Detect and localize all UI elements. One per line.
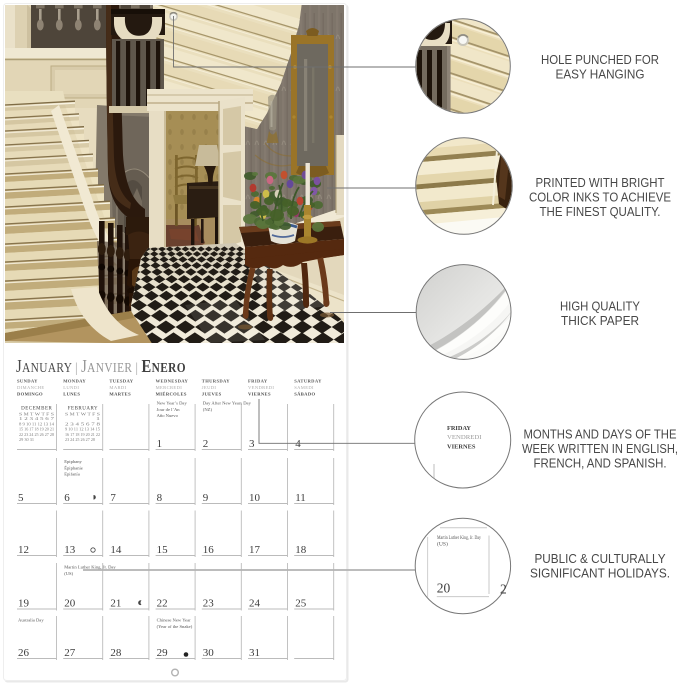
svg-text:SATURDAY: SATURDAY [294,379,322,384]
svg-text:PUBLIC & CULTURALLY: PUBLIC & CULTURALLY [535,552,667,566]
svg-text:8: 8 [157,492,163,504]
svg-text:(Year of the Snake): (Year of the Snake) [157,624,193,629]
svg-text:25: 25 [295,598,307,610]
svg-text:EASY HANGING: EASY HANGING [556,68,645,82]
svg-text:18: 18 [295,544,307,556]
svg-text:THICK PAPER: THICK PAPER [561,314,639,328]
svg-text:20: 20 [64,598,76,610]
svg-text:SAMEDI: SAMEDI [294,385,314,390]
svg-text:22 23 24 25 26 27 28: 22 23 24 25 26 27 28 [19,432,54,437]
svg-text:SÁBADO: SÁBADO [294,392,315,397]
svg-text:6: 6 [64,492,70,504]
svg-text:VENDREDI: VENDREDI [447,434,482,441]
svg-text:24: 24 [249,598,261,610]
svg-text:VIERNES: VIERNES [447,443,476,450]
svg-text:Epifanía: Epifanía [64,472,80,477]
svg-text:3: 3 [249,438,255,450]
svg-text:21: 21 [110,598,121,610]
svg-text:Año Nuevo: Año Nuevo [157,413,179,418]
svg-text:PRINTED WITH BRIGHT: PRINTED WITH BRIGHT [536,176,665,190]
svg-text:10: 10 [249,492,261,504]
svg-text:SUNDAY: SUNDAY [17,379,38,384]
svg-text:9 10 11 12 13 14 15: 9 10 11 12 13 14 15 [65,427,100,432]
svg-text:2: 2 [203,438,209,450]
svg-text:2: 2 [500,582,507,597]
svg-text:VIERNES: VIERNES [248,392,271,397]
svg-text:FRIDAY: FRIDAY [447,425,471,432]
svg-text:15 16 17 18 19 20 21: 15 16 17 18 19 20 21 [19,427,54,432]
svg-text:MARTES: MARTES [109,392,131,397]
svg-text:(US): (US) [437,541,448,548]
svg-text:4: 4 [295,438,301,450]
svg-text:Australia Day: Australia Day [18,618,44,623]
svg-text:Jour de l’An: Jour de l’An [157,407,181,412]
svg-text:MERCREDI: MERCREDI [156,385,183,390]
svg-text:9: 9 [203,492,209,504]
svg-text:26: 26 [18,647,30,659]
svg-text:THURSDAY: THURSDAY [202,379,230,384]
svg-text:VENDREDI: VENDREDI [248,385,274,390]
svg-text:(US): (US) [64,571,73,576]
svg-text:17: 17 [249,544,261,556]
svg-text:20: 20 [437,581,451,596]
svg-text:23 24 25 26 27 28: 23 24 25 26 27 28 [65,437,95,442]
svg-text:28: 28 [110,647,122,659]
svg-text:Martin Luther King, Jr. Day: Martin Luther King, Jr. Day [437,535,481,541]
svg-text:DOMINGO: DOMINGO [17,392,43,397]
svg-text:1 2 3 4 5 6 7: 1 2 3 4 5 6 7 [19,416,54,421]
svg-text:12: 12 [18,544,29,556]
svg-text:Épiphanie: Épiphanie [64,465,83,470]
svg-text:DIMANCHE: DIMANCHE [17,385,45,390]
svg-text:MONDAY: MONDAY [63,379,86,384]
svg-text:23: 23 [203,598,215,610]
svg-text:SIGNIFICANT HOLIDAYS.: SIGNIFICANT HOLIDAYS. [530,567,670,581]
svg-text:WEEK WRITTEN IN ENGLISH,: WEEK WRITTEN IN ENGLISH, [522,442,678,456]
svg-text:JUEVES: JUEVES [202,392,222,397]
svg-text:13: 13 [64,544,76,556]
svg-text:19: 19 [18,598,30,610]
svg-text:29 30 31: 29 30 31 [19,437,34,442]
svg-text:JEUDI: JEUDI [202,385,217,390]
svg-text:1: 1 [157,438,163,450]
svg-text:16 17 18 19 20 21 22: 16 17 18 19 20 21 22 [65,432,100,437]
svg-text:LUNDI: LUNDI [63,385,79,390]
svg-text:22: 22 [157,598,168,610]
svg-text:Epiphany: Epiphany [64,459,82,464]
svg-text:HOLE PUNCHED FOR: HOLE PUNCHED FOR [541,53,659,67]
svg-text:29: 29 [157,647,169,659]
svg-text:30: 30 [203,647,215,659]
svg-text:31: 31 [249,647,260,659]
svg-text:Chinese New Year: Chinese New Year [157,618,192,623]
svg-text:FRIDAY: FRIDAY [248,379,268,384]
svg-text:5: 5 [18,492,24,504]
svg-text:7: 7 [110,492,116,504]
svg-text:LUNES: LUNES [63,392,80,397]
svg-text:HIGH QUALITY: HIGH QUALITY [560,300,641,314]
svg-text:11: 11 [295,492,306,504]
svg-text:COLOR INKS TO ACHIEVE: COLOR INKS TO ACHIEVE [529,191,671,205]
svg-text:16: 16 [203,544,215,556]
svg-text:1: 1 [96,416,100,421]
svg-text:15: 15 [157,544,169,556]
svg-text:MONTHS AND DAYS OF THE: MONTHS AND DAYS OF THE [524,428,677,442]
svg-text:TUESDAY: TUESDAY [109,379,133,384]
svg-text:8 9 10 11 12 13 14: 8 9 10 11 12 13 14 [19,421,54,426]
svg-text:MARDI: MARDI [109,385,126,390]
svg-text:2 3 4 5 6 7 8: 2 3 4 5 6 7 8 [65,421,100,426]
svg-text:WEDNESDAY: WEDNESDAY [156,379,189,384]
svg-text:FRENCH, AND SPANISH.: FRENCH, AND SPANISH. [534,457,667,471]
svg-text:27: 27 [64,647,76,659]
svg-text:(NZ): (NZ) [203,407,213,412]
svg-text:New Year’s Day: New Year’s Day [157,401,188,406]
svg-text:THE FINEST QUALITY.: THE FINEST QUALITY. [540,205,661,219]
svg-text:MIÉRCOLES: MIÉRCOLES [156,392,187,397]
svg-text:14: 14 [110,544,122,556]
svg-text:Day After New Years Day: Day After New Years Day [203,401,252,406]
